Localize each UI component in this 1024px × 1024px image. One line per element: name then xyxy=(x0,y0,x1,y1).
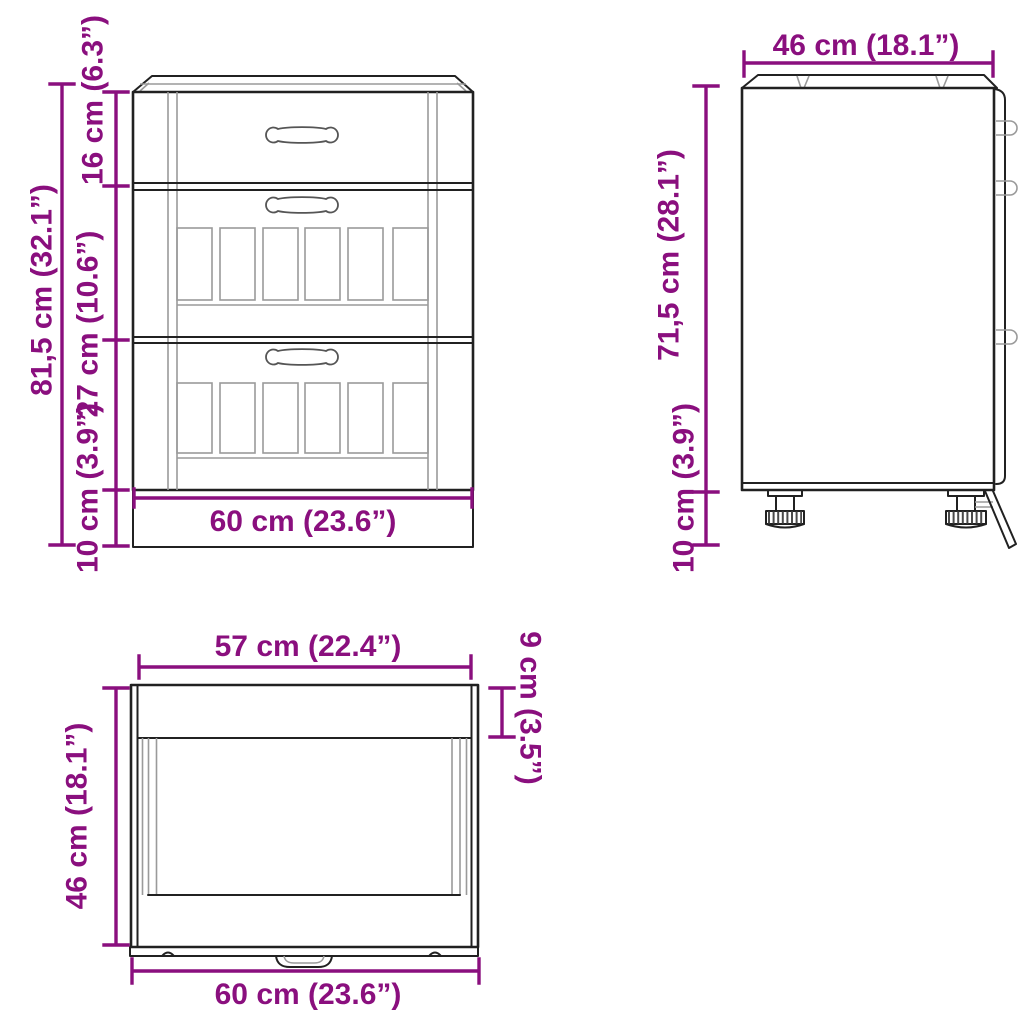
side-body-height-label: 71,5 cm (28.1”) xyxy=(653,149,686,361)
plinth-board-diagonal xyxy=(985,491,1016,548)
top-front-width-label: 57 cm (22.4”) xyxy=(215,630,402,663)
top-drawer-front-strip xyxy=(130,947,478,956)
top-view: 57 cm (22.4”) 9 cm (3.5”) 46 cm (18.1”) … xyxy=(61,630,547,1011)
side-feet-height-label: 10 cm (3.9”) xyxy=(668,403,701,573)
front-foot xyxy=(946,490,1016,548)
drawer-front-overhang xyxy=(994,89,1005,484)
dimension-diagram: 81,5 cm (32.1”) 16 cm (6.3”) 27 cm (10.6… xyxy=(0,0,1024,1024)
bottom-drawer-slats xyxy=(177,383,428,453)
top-outline xyxy=(131,685,478,947)
side-cabinet-drawing xyxy=(742,75,1017,548)
diagram-canvas: 81,5 cm (32.1”) 16 cm (6.3”) 27 cm (10.6… xyxy=(0,0,1024,1024)
drawer-front-edge-tab-3 xyxy=(996,330,1017,344)
top-side-panel-edges xyxy=(138,685,472,947)
top-interior-side-lines xyxy=(143,738,467,895)
front-plinth-height-label: 10 cm (3.9”) xyxy=(72,403,105,573)
top-depth-label: 46 cm (18.1”) xyxy=(61,723,94,910)
side-panel xyxy=(742,88,994,490)
side-dimensions: 46 cm (18.1”) 71,5 cm (28.1”) 10 cm (3.9… xyxy=(653,29,994,573)
middle-drawer-handle xyxy=(266,197,338,213)
side-view: 46 cm (18.1”) 71,5 cm (28.1”) 10 cm (3.9… xyxy=(653,29,1018,573)
side-top-face xyxy=(742,75,997,88)
top-front-edge-depth-label: 9 cm (3.5”) xyxy=(514,631,547,784)
front-drawer-height-label: 27 cm (10.6”) xyxy=(72,231,105,418)
top-handle-inner xyxy=(284,956,324,963)
front-top-drawer-height-label: 16 cm (6.3”) xyxy=(77,15,110,185)
top-drawer-handle xyxy=(266,127,338,143)
drawer-front-edge-tab-1 xyxy=(996,121,1017,135)
drawer-front-edge-tab-2 xyxy=(996,181,1017,195)
top-front-edge-depth-dim-line xyxy=(490,688,514,737)
top-width-label: 60 cm (23.6”) xyxy=(215,978,402,1011)
cabinet-body xyxy=(133,92,473,490)
front-width-label: 60 cm (23.6”) xyxy=(210,505,397,538)
top-cabinet-drawing xyxy=(130,685,478,967)
side-top-notches xyxy=(797,76,948,88)
front-view: 81,5 cm (32.1”) 16 cm (6.3”) 27 cm (10.6… xyxy=(26,15,474,573)
front-total-height-label: 81,5 cm (32.1”) xyxy=(26,184,59,396)
top-dimensions: 57 cm (22.4”) 9 cm (3.5”) 46 cm (18.1”) … xyxy=(61,630,547,1011)
rear-foot xyxy=(766,490,804,528)
side-depth-label: 46 cm (18.1”) xyxy=(773,29,960,62)
front-cabinet-drawing xyxy=(133,76,473,547)
side-stiles xyxy=(168,92,437,490)
middle-drawer-slats xyxy=(177,228,428,300)
bottom-drawer-handle xyxy=(266,349,338,365)
top-depth-dim-line xyxy=(104,688,128,945)
